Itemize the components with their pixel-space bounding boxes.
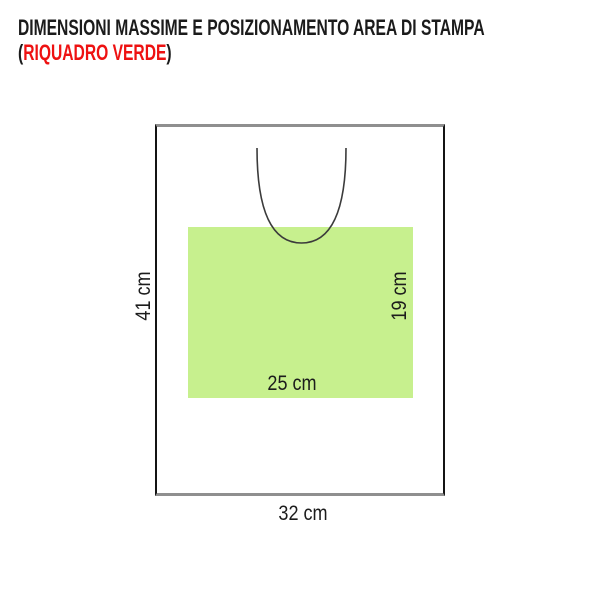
print-area-height-label: 19 cm (388, 262, 412, 331)
title-line-1-text: DIMENSIONI MASSIME E POSIZIONAMENTO AREA… (18, 15, 485, 40)
bag-height-label: 41 cm (132, 262, 156, 331)
title-line-2-text: (RIQUADRO VERDE) (18, 40, 172, 65)
title-line-1: DIMENSIONI MASSIME E POSIZIONAMENTO AREA… (18, 15, 600, 40)
page-title: DIMENSIONI MASSIME E POSIZIONAMENTO AREA… (18, 15, 600, 65)
bag-handle-curve-path (257, 148, 346, 243)
bag-handle-curve-icon (250, 145, 354, 250)
title-paren-close: ) (166, 40, 171, 65)
bag-width-label: 32 cm (269, 502, 338, 526)
title-highlight-riquadro-verde: RIQUADRO VERDE (23, 40, 166, 65)
print-area-diagram-page: DIMENSIONI MASSIME E POSIZIONAMENTO AREA… (0, 0, 600, 600)
title-line-2: (RIQUADRO VERDE) (18, 40, 600, 65)
print-area-width-label: 25 cm (258, 372, 327, 396)
